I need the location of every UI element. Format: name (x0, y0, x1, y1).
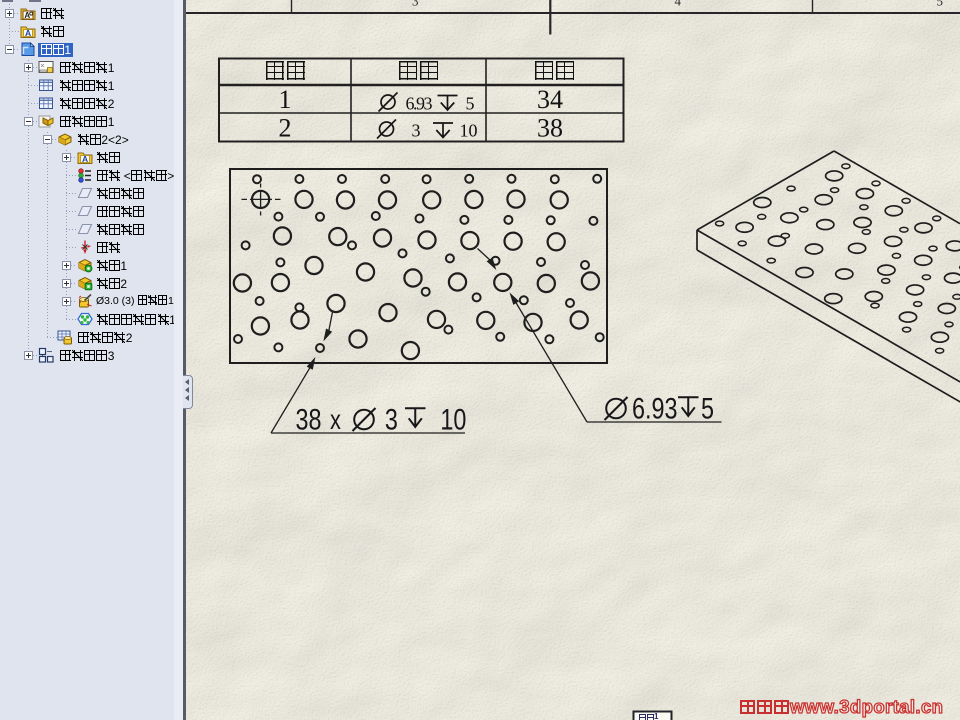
svg-text:3: 3 (412, 0, 419, 9)
svg-text:38: 38 (537, 114, 563, 143)
svg-text:6.93: 6.93 (632, 392, 678, 425)
svg-text:6.93: 6.93 (406, 94, 433, 114)
svg-text:38: 38 (296, 403, 322, 436)
svg-text:x: x (330, 404, 341, 435)
svg-text:10: 10 (440, 403, 466, 436)
svg-text:5: 5 (701, 392, 714, 425)
svg-text:4: 4 (675, 0, 682, 9)
svg-text:2: 2 (279, 114, 292, 143)
svg-text:3: 3 (385, 403, 398, 436)
svg-text:1: 1 (279, 85, 292, 114)
svg-text:34: 34 (537, 85, 563, 114)
svg-text:10: 10 (460, 121, 478, 141)
svg-text:5: 5 (937, 0, 944, 9)
svg-text:3: 3 (412, 121, 421, 141)
svg-text:5: 5 (466, 94, 475, 114)
